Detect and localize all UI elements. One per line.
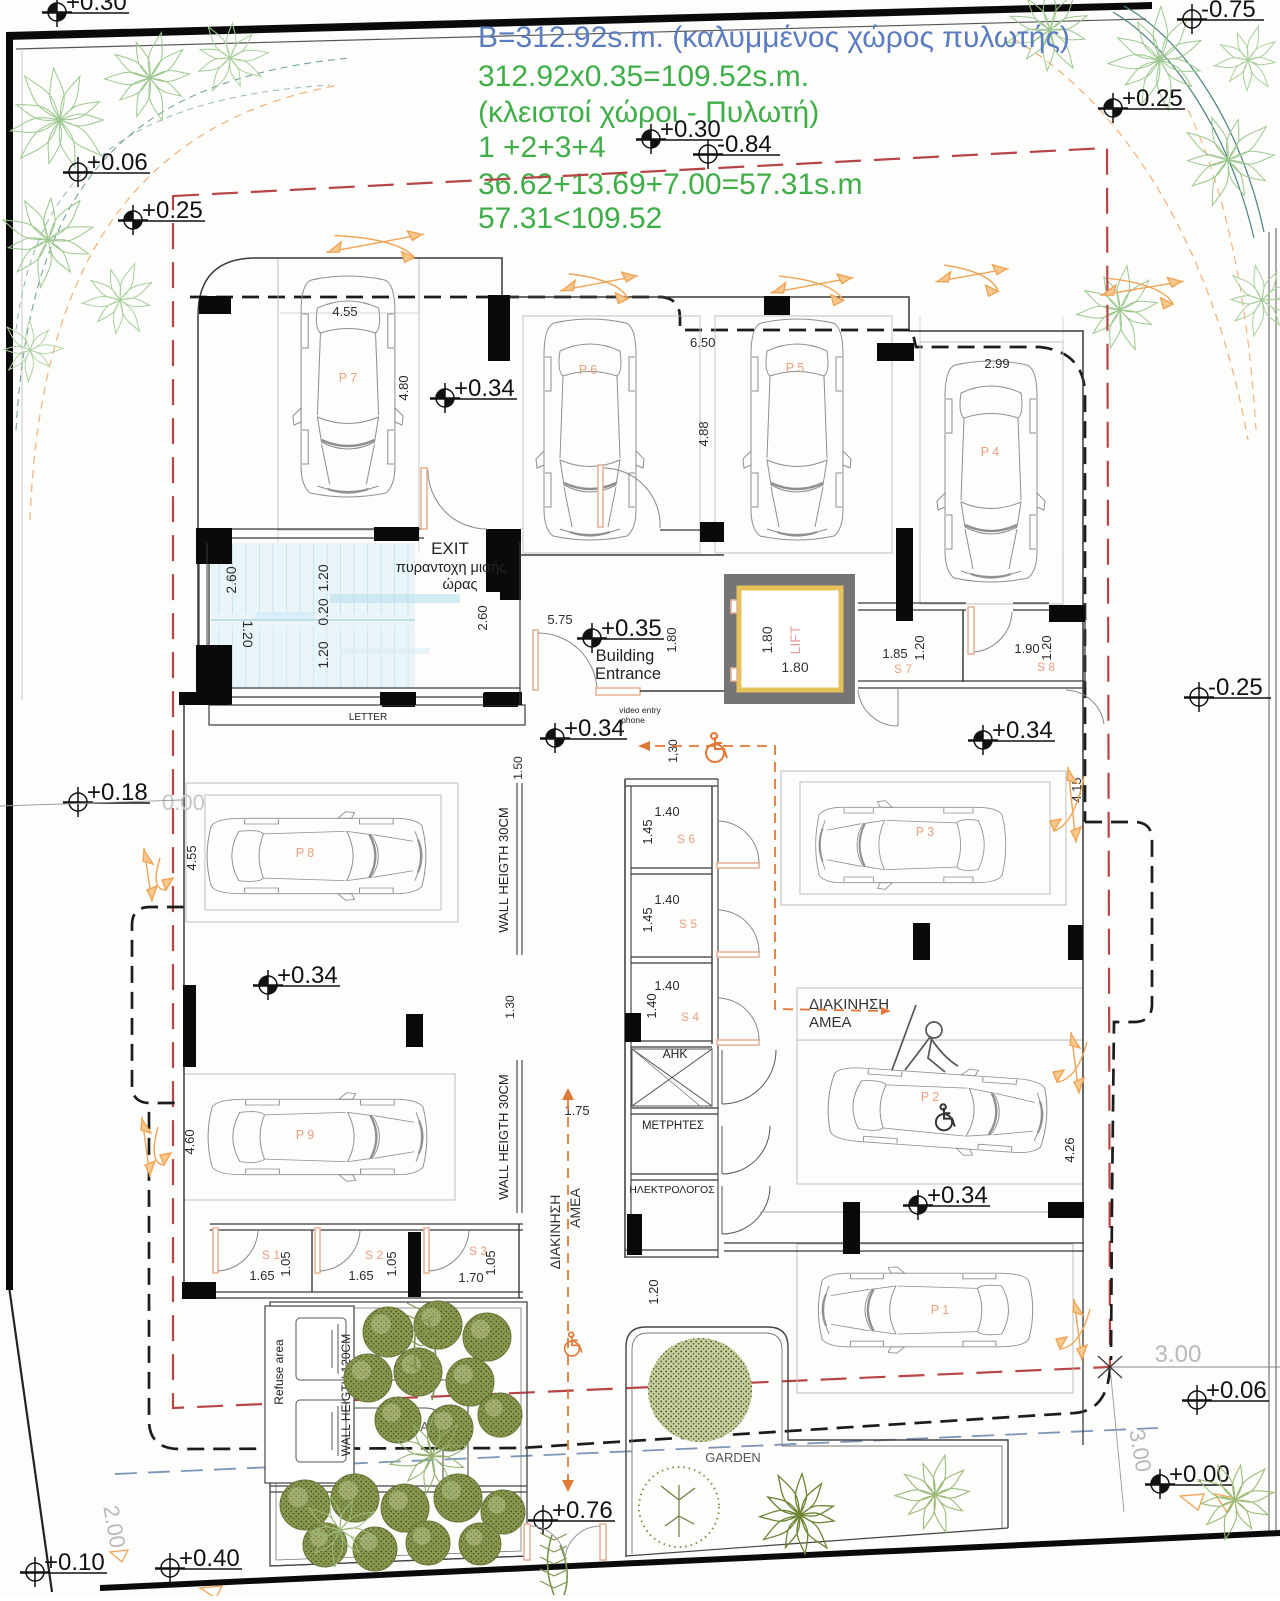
svg-text:EXIT: EXIT [431,539,469,558]
svg-text:1.05: 1.05 [384,1251,399,1276]
svg-text:πυραντοχη μισής: πυραντοχη μισής [396,560,506,576]
svg-text:+0.34: +0.34 [992,717,1053,744]
svg-text:P 8: P 8 [296,846,315,860]
svg-text:1.20: 1.20 [315,641,331,668]
svg-text:+0.34: +0.34 [277,962,338,989]
svg-text:Entrance: Entrance [595,665,661,683]
svg-text:+0.35: +0.35 [601,615,662,642]
svg-text:4.60: 4.60 [182,1129,197,1154]
svg-text:+0.30: +0.30 [660,116,721,143]
svg-text:ΑΜΕΑ: ΑΜΕΑ [567,1188,583,1228]
svg-text:57.31<109.52: 57.31<109.52 [478,202,662,235]
svg-text:+0.34: +0.34 [564,715,625,742]
svg-text:B=312.92s.m. (καλυμμένος χώρος: B=312.92s.m. (καλυμμένος χώρος πυλωτής) [478,21,1070,54]
svg-text:phone: phone [621,715,645,725]
svg-text:+0.25: +0.25 [1122,85,1183,112]
svg-text:312.92x0.35=109.52s.m.: 312.92x0.35=109.52s.m. [478,60,809,93]
svg-text:P 2: P 2 [921,1090,940,1104]
svg-text:3.00: 3.00 [1155,1341,1202,1368]
svg-text:P 4: P 4 [981,445,1000,459]
svg-text:+0.34: +0.34 [927,1182,988,1209]
svg-text:1.65: 1.65 [249,1268,274,1283]
svg-text:video entry: video entry [619,705,661,715]
svg-text:+0.00: +0.00 [1169,1461,1230,1488]
svg-text:P 7: P 7 [339,371,358,385]
svg-text:(κλειστοί χώροι - Πυλωτή): (κλειστοί χώροι - Πυλωτή) [478,96,819,129]
svg-text:1.85: 1.85 [882,646,907,661]
svg-text:1.50: 1.50 [511,756,525,780]
svg-text:1.20: 1.20 [1039,635,1054,660]
svg-text:1,30: 1,30 [666,739,680,763]
svg-text:4.88: 4.88 [696,421,711,446]
svg-text:S 4: S 4 [681,1010,699,1024]
svg-text:4.55: 4.55 [332,304,357,319]
svg-text:1.90: 1.90 [1014,641,1039,656]
svg-text:4.26: 4.26 [1062,1137,1077,1162]
svg-text:GARDEN: GARDEN [705,1450,761,1465]
svg-text:4.55: 4.55 [184,845,199,870]
svg-text:1.20: 1.20 [315,564,331,591]
svg-text:+0.10: +0.10 [44,1549,105,1576]
svg-text:+0.34: +0.34 [454,375,515,402]
svg-text:4.80: 4.80 [396,375,411,400]
svg-text:S 8: S 8 [1037,660,1055,674]
svg-text:+0.25: +0.25 [142,197,203,224]
svg-text:1 +2+3+4: 1 +2+3+4 [478,131,606,164]
svg-text:ΔΙΑΚΙΝΗΣΗ: ΔΙΑΚΙΝΗΣΗ [547,1195,563,1270]
svg-text:+0.40: +0.40 [179,1545,240,1572]
svg-text:P 5: P 5 [786,361,805,375]
svg-text:1.80: 1.80 [664,627,679,652]
svg-text:ώρας: ώρας [443,577,478,593]
svg-text:1.40: 1.40 [654,978,679,993]
svg-text:WALL HEIGTH 30CM: WALL HEIGTH 30CM [496,807,511,932]
svg-text:2.60: 2.60 [475,605,490,630]
svg-text:ΜΕΤΡΗΤΕΣ: ΜΕΤΡΗΤΕΣ [642,1120,704,1132]
svg-text:1.20: 1.20 [912,635,927,660]
svg-text:S 6: S 6 [677,832,695,846]
svg-text:+0.76: +0.76 [552,1497,613,1524]
svg-text:1.70: 1.70 [458,1270,483,1285]
svg-text:-0.84: -0.84 [717,131,772,158]
svg-text:LETTER: LETTER [349,712,387,723]
svg-text:ΑΜΕΑ: ΑΜΕΑ [809,1014,852,1031]
svg-text:1.20: 1.20 [240,620,256,647]
svg-text:1.30: 1.30 [503,995,517,1019]
svg-text:WALL HEIGTH 30CM: WALL HEIGTH 30CM [496,1074,511,1199]
svg-text:1.40: 1.40 [654,804,679,819]
svg-text:P 6: P 6 [579,363,598,377]
svg-text:LIFT: LIFT [787,625,803,654]
svg-text:+0.06: +0.06 [87,149,148,176]
svg-text:ΑΗΚ: ΑΗΚ [663,1047,688,1061]
svg-text:1.40: 1.40 [644,993,659,1018]
svg-text:1.05: 1.05 [483,1250,498,1275]
svg-text:1.45: 1.45 [640,819,655,844]
svg-text:P 3: P 3 [916,825,935,839]
svg-text:Refuse area: Refuse area [272,1339,286,1405]
svg-text:36.62+13.69+7.00=57.31s.m: 36.62+13.69+7.00=57.31s.m [478,168,863,201]
svg-text:S 7: S 7 [894,662,912,676]
svg-text:1.05: 1.05 [278,1251,293,1276]
svg-text:P 9: P 9 [296,1128,315,1142]
svg-text:+0.06: +0.06 [1206,1377,1267,1404]
svg-text:1.40: 1.40 [654,892,679,907]
svg-text:S 5: S 5 [679,917,697,931]
svg-text:5.75: 5.75 [547,612,572,627]
svg-text:-0.25: -0.25 [1208,674,1263,701]
svg-text:1.45: 1.45 [640,907,655,932]
svg-text:2.99: 2.99 [984,356,1009,371]
svg-text:ΗΛΕΚΤΡΟΛΟΓΟΣ: ΗΛΕΚΤΡΟΛΟΓΟΣ [629,1184,715,1196]
svg-text:Building: Building [596,647,655,665]
svg-text:P 1: P 1 [931,1303,950,1317]
svg-text:1.20: 1.20 [646,1279,661,1304]
svg-text:1.80: 1.80 [781,659,808,675]
svg-text:2.60: 2.60 [223,566,239,593]
svg-text:1.65: 1.65 [348,1268,373,1283]
svg-text:6.50: 6.50 [690,335,715,350]
svg-text:0.20: 0.20 [315,598,331,625]
svg-text:S 2: S 2 [365,1248,383,1262]
svg-text:1.80: 1.80 [759,626,775,653]
svg-text:0.00: 0.00 [162,790,205,815]
